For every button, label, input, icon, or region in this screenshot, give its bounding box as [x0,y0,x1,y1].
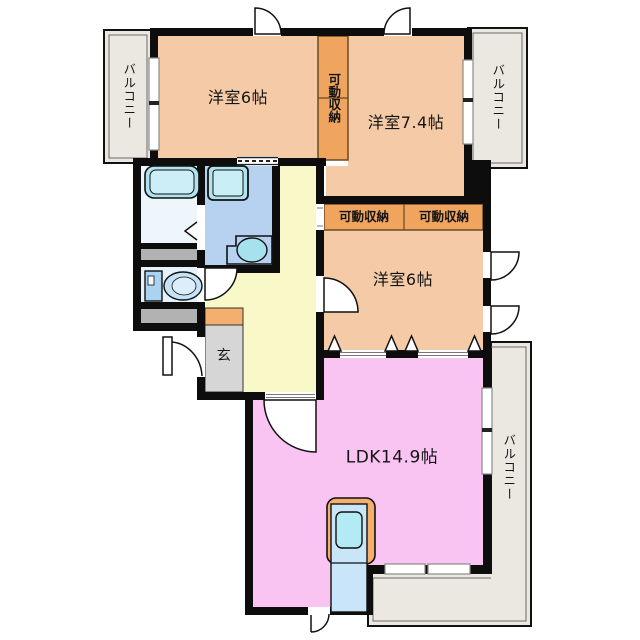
door-bedroom2-top [384,8,410,34]
bedroom1-label: 洋室6帖 [208,90,268,106]
bedroom2-label: 洋室7.4帖 [368,115,444,131]
balcony-right-label: バルコニー [502,433,515,501]
kitchen-sink [336,512,362,548]
window-bedroom2-balcony [463,60,473,144]
washroom-vanity [145,166,199,198]
movable-storage-vertical-label: 可動収納 [327,73,340,123]
ldk-label: LDK14.9帖 [346,450,439,467]
bathtub [208,166,248,200]
door-ldk-bottom [311,614,329,632]
toilet [145,271,202,301]
shoe-cabinet [205,308,243,325]
door-bedroom1-top [255,8,281,34]
balcony-top-right-label: バルコニー [491,63,504,131]
door-entry [163,337,202,376]
closet-strip-1 [141,249,197,260]
window-ldk-balcony-south [385,564,470,574]
bedroom3-label: 洋室6帖 [373,272,433,288]
door-bedroom3-right-2 [491,306,519,334]
window-bedroom1-balcony [149,58,159,150]
door-bedroom3-right-1 [491,252,519,280]
floor-plan: 洋室6帖 洋室7.4帖 洋室6帖 LDK14.9帖 玄 可動収納 可動収納 可動… [0,0,640,640]
movable-storage-right-label: 可動収納 [419,211,469,224]
movable-storage-left-label: 可動収納 [339,211,389,224]
closet-strip-2 [141,309,197,323]
window-ldk-balcony-east [482,388,492,474]
balcony-left-label: バルコニー [122,62,135,130]
entrance-label: 玄 [217,349,232,363]
floor-plan-drawing [0,0,640,640]
